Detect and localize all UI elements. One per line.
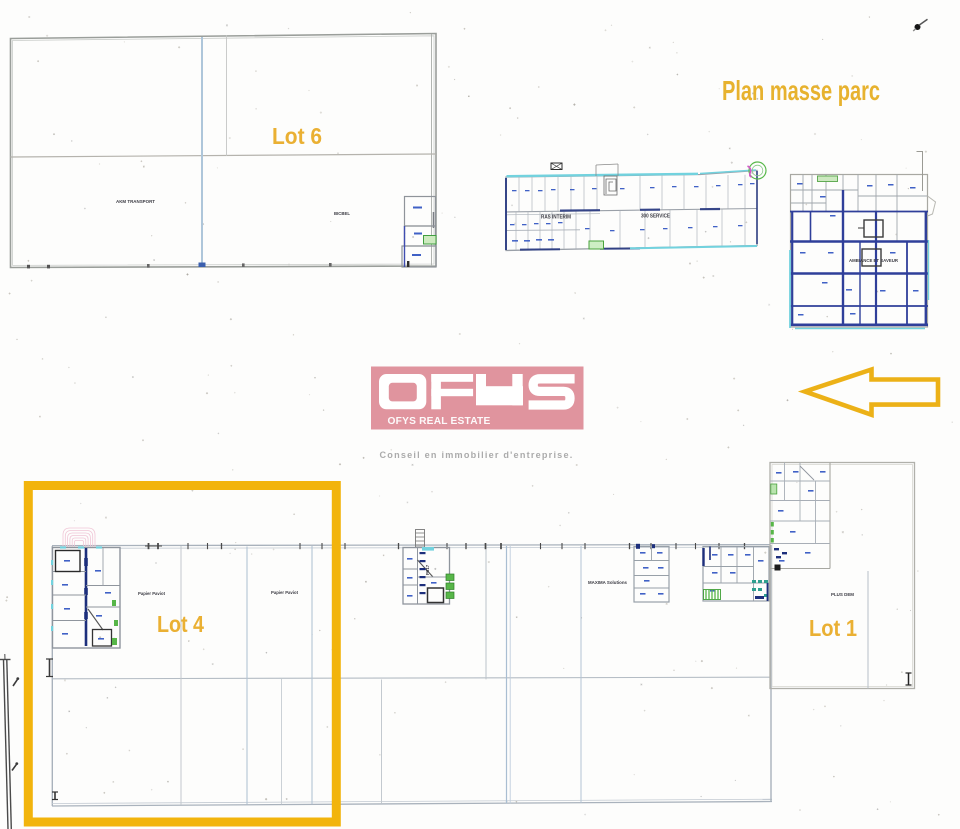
svg-text:300 SERVICE: 300 SERVICE bbox=[641, 214, 671, 220]
svg-text:PLUS DEM: PLUS DEM bbox=[831, 592, 854, 597]
svg-text:P617: P617 bbox=[425, 564, 430, 575]
svg-text:AMBIANCE ET SAVEUR: AMBIANCE ET SAVEUR bbox=[849, 258, 899, 263]
svg-text:BICBEL: BICBEL bbox=[334, 211, 350, 216]
svg-text:Lot 6: Lot 6 bbox=[272, 123, 322, 149]
svg-text:Lot 1: Lot 1 bbox=[809, 615, 857, 641]
svg-text:MAXIMA Solutions: MAXIMA Solutions bbox=[588, 580, 627, 585]
svg-text:OFYS REAL ESTATE: OFYS REAL ESTATE bbox=[388, 416, 491, 427]
svg-text:Plan masse parc: Plan masse parc bbox=[722, 75, 880, 106]
svg-text:AKM TRANSPORT: AKM TRANSPORT bbox=[116, 199, 155, 204]
svg-text:Lot 4: Lot 4 bbox=[157, 611, 204, 637]
svg-text:Conseil en immobilier d'entrep: Conseil en immobilier d'entreprise. bbox=[380, 450, 574, 460]
svg-text:RAS INTERIM: RAS INTERIM bbox=[541, 215, 571, 221]
svg-text:Papier Paviot: Papier Paviot bbox=[271, 590, 299, 595]
svg-text:Papier Paviot: Papier Paviot bbox=[138, 591, 166, 596]
